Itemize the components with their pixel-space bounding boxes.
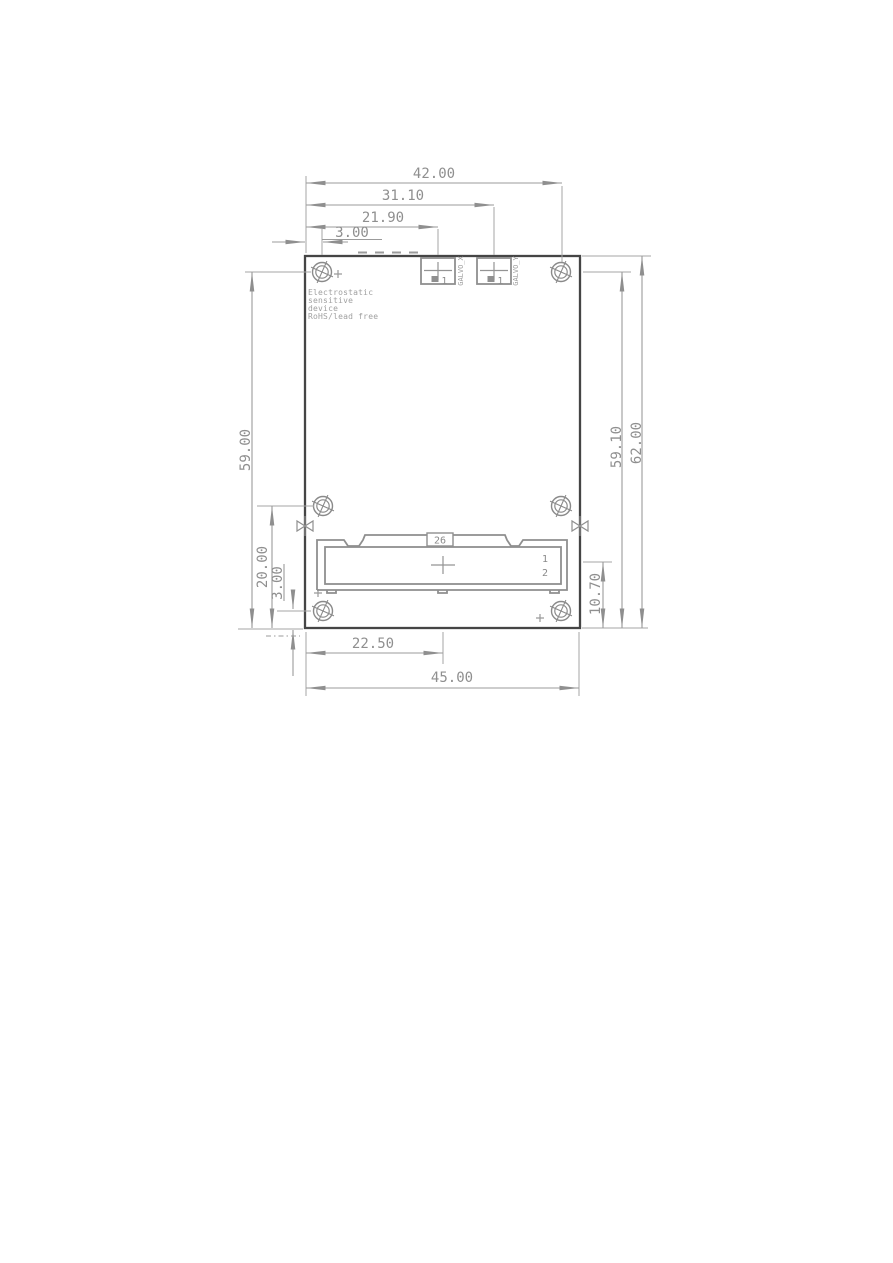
extension-line (238, 176, 651, 696)
dimension-bottom-22: 22.50 (306, 636, 443, 653)
plus-mark-icon (334, 270, 342, 278)
dimension-value: 21.90 (362, 210, 404, 226)
bowtie-fiducial-icon (572, 516, 588, 536)
dimension-top-21: 21.90 (306, 210, 438, 227)
designator-label: 26 (434, 536, 446, 547)
pin-bottom-label: 2 (542, 568, 548, 579)
dimension-left-3: 3.00 (266, 564, 300, 676)
dimension-value: 10.70 (588, 573, 604, 615)
dimension-right-10: 10.70 (588, 562, 604, 628)
pin-top-label: 1 (542, 554, 548, 565)
drawing-page: Electrostatic sensitive device RoHS/lead… (0, 0, 893, 1263)
silkscreen-esd-text: Electrostatic sensitive device RoHS/lead… (308, 288, 378, 321)
mounting-hole-top-right (545, 256, 577, 288)
pin1-label: 1 (498, 276, 504, 287)
extension-lines (238, 176, 651, 696)
center-crosshair-icon (431, 556, 455, 574)
origin-marks (314, 270, 544, 622)
connector-galvo-y: 1 GALVO_Y (477, 255, 520, 287)
dimension-left-59: 59.00 (238, 272, 254, 628)
dimension-value: 42.00 (413, 166, 455, 182)
refdes-label: GALVO_X (457, 255, 465, 285)
dimension-value: 3.00 (270, 566, 286, 600)
dimension-value: 45.00 (431, 670, 473, 686)
pin1-pad (432, 276, 439, 282)
bowtie-fiducial-icon (297, 516, 313, 536)
dimension-value: 59.00 (238, 429, 254, 471)
pin1-label: 1 (442, 276, 448, 287)
pin1-pad (488, 276, 495, 282)
dimension-bottom-45: 45.00 (306, 670, 579, 688)
dimension-right-62: 62.00 (629, 256, 645, 628)
silkscreen-line: RoHS/lead free (308, 312, 378, 321)
dimension-top-31: 31.10 (306, 188, 494, 205)
connector-galvo-x: 1 GALVO_X (421, 255, 465, 287)
mounting-hole-bottom-right (545, 595, 577, 627)
pcb-dimension-drawing: Electrostatic sensitive device RoHS/lead… (0, 0, 893, 1263)
refdes-label: GALVO_Y (512, 255, 520, 285)
dimension-value: 62.00 (629, 422, 645, 464)
dimension-value: 31.10 (382, 188, 424, 204)
dimension-right-59: 59.10 (609, 272, 625, 628)
mounting-hole-bottom-left (307, 595, 339, 627)
plus-mark-icon (536, 614, 544, 622)
dimension-value: 59.10 (609, 426, 625, 468)
mounting-hole-mid-right (545, 490, 577, 522)
dimension-value: 22.50 (352, 636, 394, 652)
dimension-value: 20.00 (255, 546, 271, 588)
connector-main: 26 1 2 (317, 533, 567, 593)
dimension-value: 3.00 (335, 225, 369, 241)
dimension-top-42: 42.00 (306, 166, 562, 183)
